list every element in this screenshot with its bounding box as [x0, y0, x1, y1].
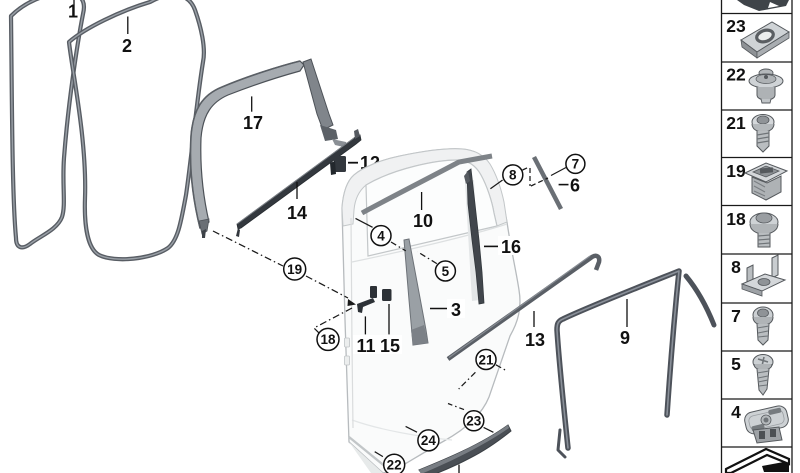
svg-text:21: 21 — [478, 352, 494, 367]
svg-text:22: 22 — [387, 458, 402, 473]
svg-text:22: 22 — [726, 65, 746, 85]
svg-text:9: 9 — [620, 328, 630, 348]
svg-text:3: 3 — [451, 300, 461, 320]
svg-text:24: 24 — [421, 433, 437, 448]
svg-text:1: 1 — [68, 2, 78, 22]
svg-text:13: 13 — [525, 330, 545, 350]
svg-text:5: 5 — [442, 264, 450, 279]
svg-text:4: 4 — [377, 228, 385, 243]
svg-text:4: 4 — [731, 402, 741, 422]
svg-text:7: 7 — [572, 157, 580, 172]
svg-text:2: 2 — [122, 36, 132, 56]
svg-text:18: 18 — [320, 332, 336, 347]
svg-text:11: 11 — [356, 336, 375, 356]
svg-text:5: 5 — [731, 354, 741, 374]
svg-text:14: 14 — [287, 203, 307, 223]
svg-text:23: 23 — [466, 414, 482, 429]
svg-text:18: 18 — [726, 209, 746, 229]
svg-text:19: 19 — [726, 161, 746, 181]
svg-text:8: 8 — [731, 257, 741, 277]
svg-text:7: 7 — [731, 306, 741, 326]
svg-text:21: 21 — [726, 113, 746, 133]
svg-text:15: 15 — [380, 336, 400, 356]
svg-text:16: 16 — [501, 237, 521, 257]
svg-text:19: 19 — [287, 262, 302, 277]
svg-text:17: 17 — [243, 113, 263, 133]
svg-text:6: 6 — [570, 176, 580, 196]
svg-text:8: 8 — [509, 168, 517, 183]
svg-text:23: 23 — [726, 16, 746, 36]
svg-text:10: 10 — [413, 211, 433, 231]
